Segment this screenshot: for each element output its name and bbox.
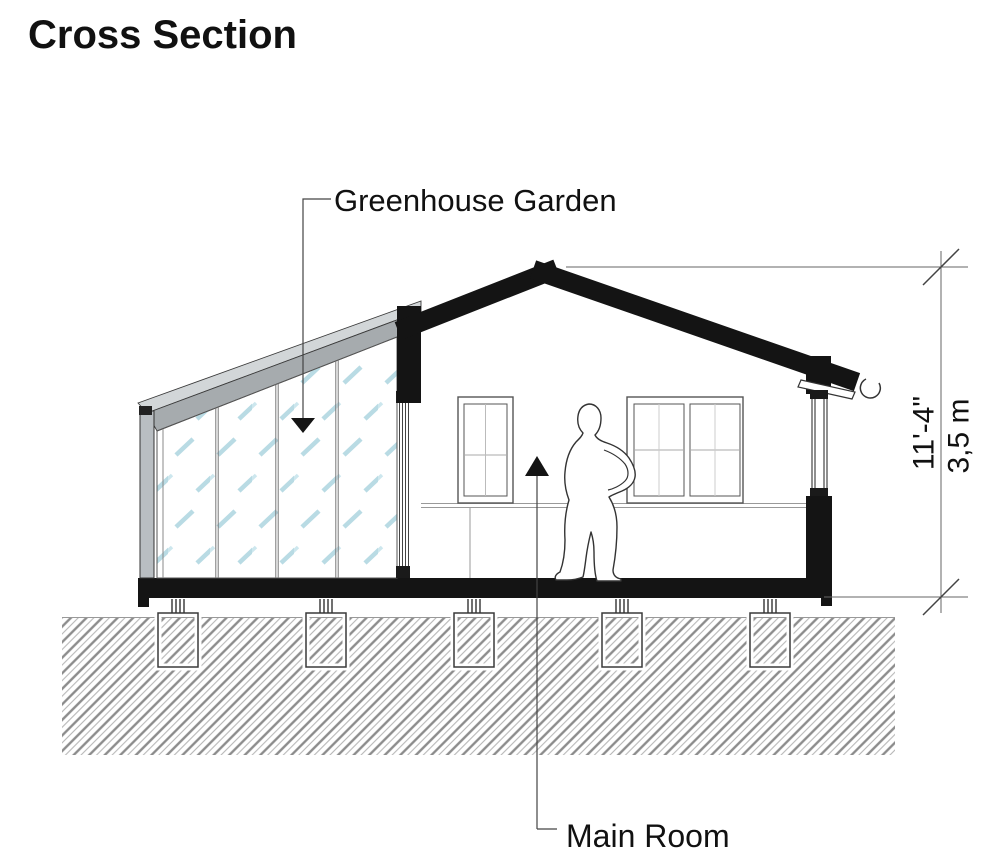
- right-wall: [806, 496, 832, 598]
- gutter-icon: [860, 379, 880, 398]
- gable-roof: [407, 272, 848, 379]
- cross-section-page: Greenhouse Garden Main Room 11'-4" 3,5 m…: [0, 0, 997, 867]
- ground-hatch: [62, 617, 895, 755]
- cross-section-drawing: Greenhouse Garden Main Room 11'-4" 3,5 m…: [0, 0, 997, 867]
- dimension-text-imperial: 11'-4": [908, 396, 941, 470]
- glazed-partition: [396, 391, 410, 578]
- greenhouse-post-cap: [139, 406, 152, 415]
- partition-frame-lines: [400, 402, 409, 577]
- partition-bottom-block: [396, 566, 410, 578]
- window-left: [458, 397, 513, 503]
- greenhouse-label: Greenhouse Garden: [334, 183, 617, 218]
- right-wall-window: [810, 390, 828, 498]
- floor-beam-left-nub: [138, 598, 149, 607]
- main-room: [421, 397, 806, 581]
- roof-right-slope: [542, 273, 848, 380]
- ground: [62, 617, 895, 755]
- floor-slab: [138, 578, 832, 607]
- page-title: Cross Section: [28, 13, 297, 57]
- greenhouse-corner-post: [140, 411, 154, 578]
- floor-beam-right-nub: [821, 598, 832, 606]
- window-right: [627, 397, 743, 503]
- person-silhouette: [555, 404, 635, 581]
- floor-beam: [138, 578, 832, 598]
- roof-left-slope: [407, 272, 548, 328]
- main-room-label: Main Room: [566, 818, 730, 854]
- greenhouse: [138, 301, 421, 578]
- dimension-text-metric: 3,5 m: [943, 398, 976, 473]
- up-arrow-icon: [525, 456, 549, 476]
